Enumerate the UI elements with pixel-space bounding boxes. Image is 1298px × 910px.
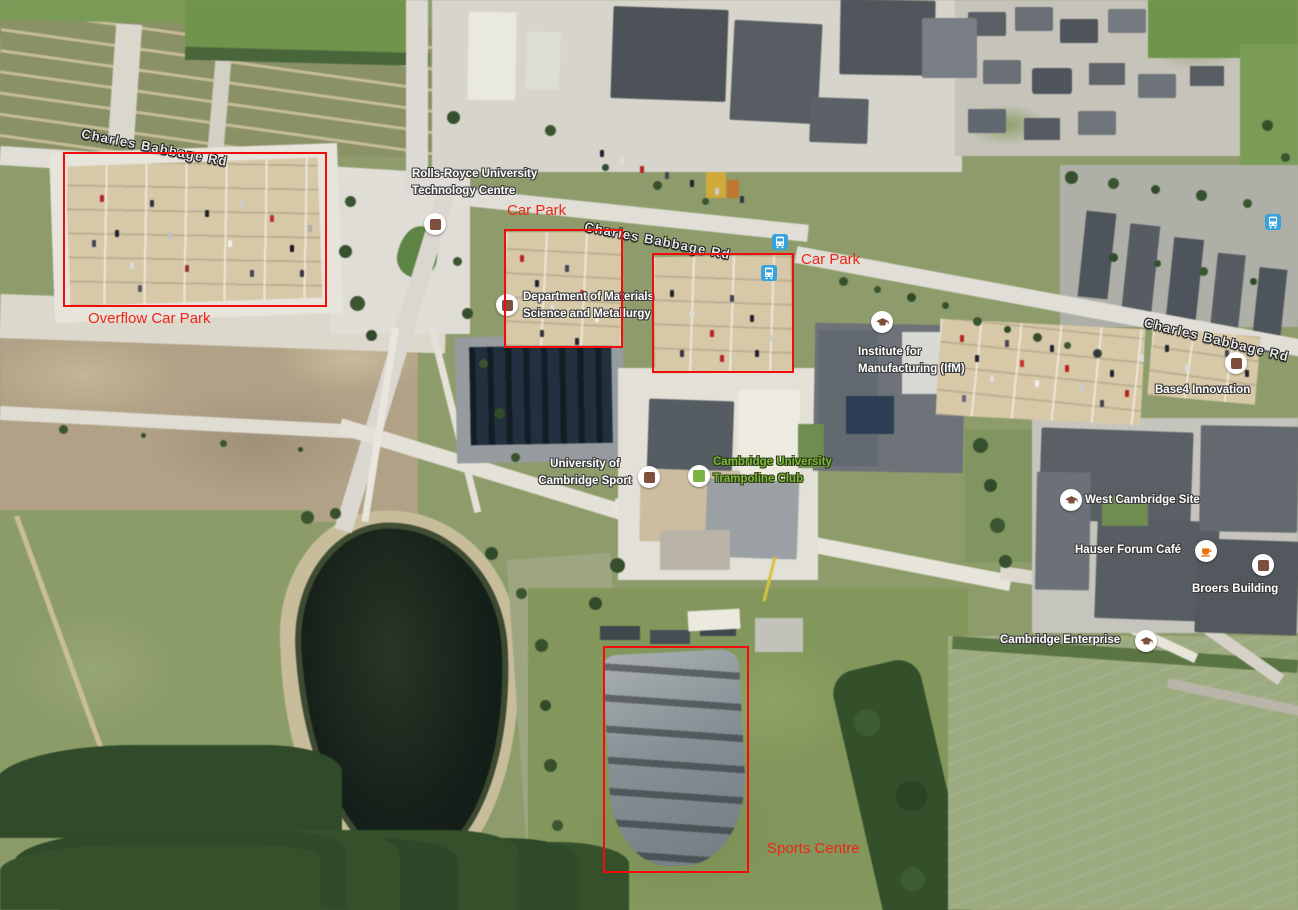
poi-label-hauser-forum-cafe[interactable]: Hauser Forum Café [1075,542,1181,559]
annotation-box-overflow-car-park [63,152,327,307]
bus-stop-icon[interactable] [772,234,788,250]
poi-text: University of [530,456,640,473]
annotation-box-sports-centre [603,646,749,873]
poi-text: Institute for [858,344,965,361]
poi-label-rolls-royce-utc[interactable]: Rolls-Royce University Technology Centre [412,166,537,200]
poi-label-west-cambridge-site[interactable]: West Cambridge Site [1085,492,1200,509]
poi-label-institute-manufacturing[interactable]: Institute for Manufacturing (IfM) [858,344,965,378]
poi-text: Technology Centre [412,183,537,200]
poi-label-base4-innovation[interactable]: Base4 Innovation [1155,382,1250,399]
poi-text: Cambridge Sport [530,473,640,490]
annotation-box-car-park-east [652,253,794,373]
poi-text: West Cambridge Site [1085,492,1200,509]
place-marker-icon[interactable] [424,213,446,235]
materials-science-building [469,345,613,445]
poi-label-broers-building[interactable]: Broers Building [1192,581,1278,598]
ifm-car-park-lot [936,319,1146,426]
parked-cars [0,0,4,7]
place-marker-icon[interactable] [1225,352,1247,374]
poi-text: Hauser Forum Café [1075,542,1181,559]
satellite-map[interactable]: Charles Babbage Rd Charles Babbage Rd Ch… [0,0,1298,910]
poi-text: Broers Building [1192,581,1278,598]
bus-stop-icon[interactable] [1265,214,1281,230]
annotation-box-car-park-west [504,229,623,348]
poi-text: Manufacturing (IfM) [858,361,965,378]
annotation-label-car-park-west: Car Park [507,202,566,219]
poi-label-trampoline-club[interactable]: Cambridge University Trampoline Club [713,454,832,488]
graduation-cap-icon[interactable] [1135,630,1157,652]
place-marker-icon[interactable] [1252,554,1274,576]
coffee-cup-icon[interactable] [1195,540,1217,562]
poi-text: Cambridge University [713,454,832,471]
sports-green-icon[interactable] [688,465,710,487]
poi-text: Cambridge Enterprise [1000,632,1120,649]
annotation-label-sports-centre: Sports Centre [767,840,860,857]
place-marker-icon[interactable] [638,466,660,488]
graduation-cap-icon[interactable] [871,311,893,333]
graduation-cap-icon[interactable] [1060,489,1082,511]
poi-text: Trampoline Club [713,471,832,488]
annotation-label-overflow-car-park: Overflow Car Park [88,310,211,327]
annotation-label-car-park-east: Car Park [801,251,860,268]
poi-text: Base4 Innovation [1155,382,1250,399]
poi-label-university-cambridge-sport[interactable]: University of Cambridge Sport [530,456,640,490]
poi-text: Rolls-Royce University [412,166,537,183]
poi-label-cambridge-enterprise[interactable]: Cambridge Enterprise [1000,632,1120,649]
